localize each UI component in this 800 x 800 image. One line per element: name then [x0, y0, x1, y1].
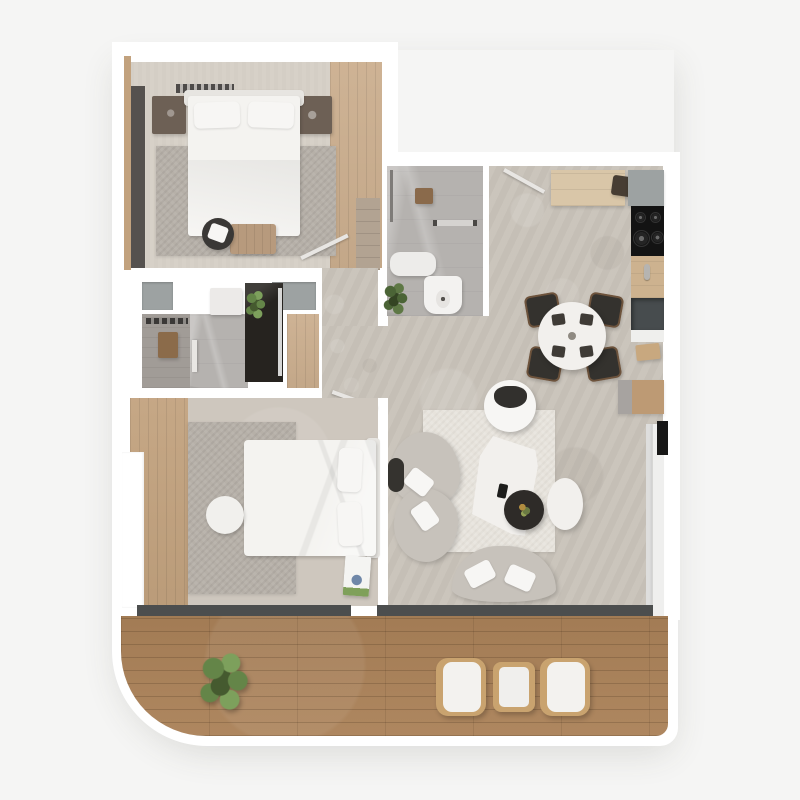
bench	[230, 224, 276, 254]
bathroom-plant	[382, 280, 410, 318]
towel-rail	[433, 220, 477, 226]
faucet	[644, 264, 650, 280]
wood-floor-nook	[287, 314, 319, 388]
exterior-wood-edge	[124, 56, 131, 270]
placemat	[579, 313, 593, 326]
wardrobe	[131, 86, 145, 268]
lounge-chair-left-cushion	[443, 662, 481, 712]
pillow	[337, 447, 363, 492]
shower-plant	[245, 288, 267, 322]
placemat	[551, 313, 565, 326]
burner-small-left	[635, 212, 646, 223]
corner-cabinet	[628, 170, 664, 206]
pillow	[194, 101, 241, 129]
pouf	[206, 496, 244, 534]
oval-side-table	[547, 478, 583, 530]
room-bedroom-2	[112, 390, 398, 610]
side-table-plant	[516, 500, 532, 518]
pillow	[337, 501, 363, 546]
magazine	[343, 555, 372, 597]
room-bathroom-1	[378, 152, 498, 332]
bathroom-2-door	[192, 340, 197, 372]
burner-large-left	[633, 230, 650, 247]
bathroom-2-floor	[190, 314, 248, 388]
placemat	[551, 345, 565, 358]
floor-plan-canvas	[0, 0, 800, 800]
armchair-cushion	[494, 386, 527, 408]
room-bedroom-1	[112, 42, 398, 282]
towel-rail	[146, 318, 188, 324]
balcony-plant	[196, 648, 254, 716]
towel	[158, 332, 178, 358]
room-balcony	[112, 608, 678, 746]
entry-door	[503, 168, 545, 194]
sink-unit	[210, 288, 242, 315]
placemat	[579, 345, 593, 358]
burner-small-right	[650, 212, 661, 223]
glass-screen	[278, 288, 282, 376]
balcony-side-table-top	[499, 667, 529, 707]
burner-large-right	[651, 231, 664, 244]
sliding-door-dark-frame	[657, 421, 668, 455]
pillow	[248, 101, 295, 129]
shower-fixture	[390, 170, 393, 222]
window-bay	[122, 452, 144, 608]
bath-mat	[415, 188, 433, 204]
console	[618, 380, 664, 414]
hallway-connector-floor	[322, 326, 392, 398]
lounge-chair-right-cushion	[547, 662, 585, 712]
shelf-unit	[356, 198, 380, 270]
shower-tray	[390, 252, 436, 276]
toilet-lid	[436, 290, 450, 308]
room-living-room	[388, 370, 680, 616]
nightstand-left	[152, 96, 186, 134]
table-centerpiece	[568, 332, 576, 340]
